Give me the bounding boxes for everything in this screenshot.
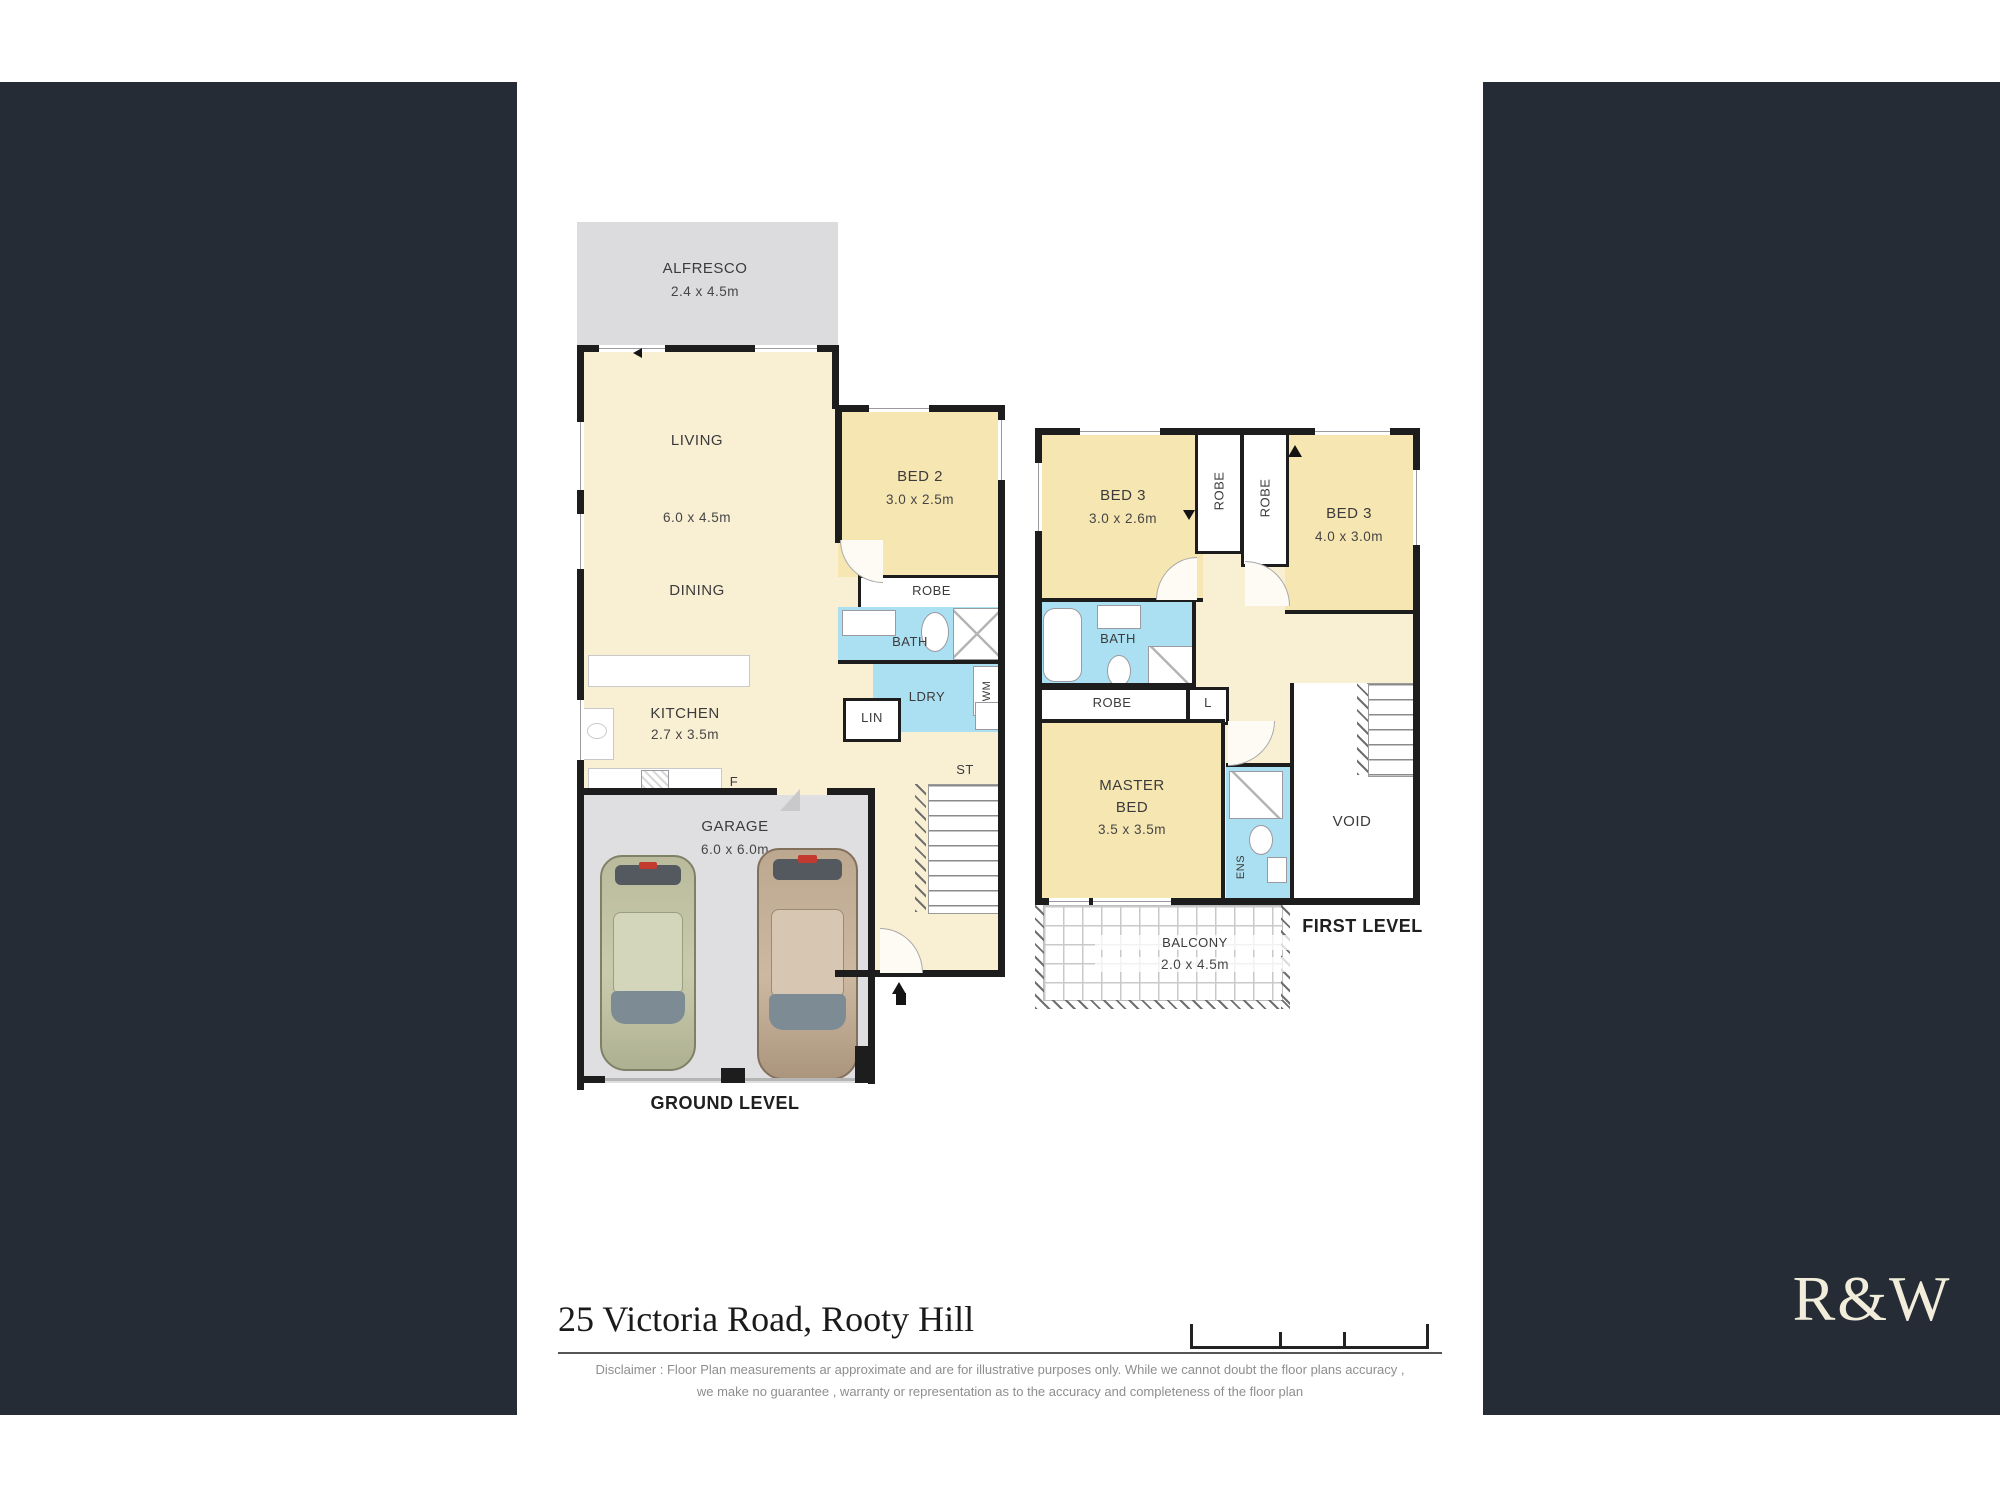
balcony-label: BALCONY	[1095, 935, 1295, 950]
master-label-2: BED	[1062, 799, 1202, 816]
wall	[832, 345, 839, 409]
window	[577, 700, 584, 760]
robe-closet-vertical: ROBE	[1195, 428, 1243, 554]
bed3-left-dims: 3.0 x 2.6m	[1053, 511, 1193, 526]
sink-bowl-icon	[587, 723, 607, 739]
window	[755, 345, 817, 352]
stair-hatch	[915, 784, 926, 912]
bed2-dims: 3.0 x 2.5m	[850, 492, 990, 507]
window	[1315, 428, 1390, 435]
lin-label: LIN	[846, 710, 898, 725]
bed3-right-dims: 4.0 x 3.0m	[1285, 529, 1413, 544]
shower-icon	[1148, 646, 1194, 687]
wall	[577, 788, 777, 795]
left-navy-panel	[0, 82, 517, 1415]
wall	[868, 788, 875, 1084]
staircase	[928, 784, 1000, 914]
window	[577, 514, 584, 569]
wall	[1192, 602, 1196, 687]
balcony-dims: 2.0 x 4.5m	[1095, 957, 1295, 972]
car-windshield-icon	[611, 991, 685, 1025]
master-dims: 3.5 x 3.5m	[1062, 822, 1202, 837]
shower-icon	[1229, 771, 1283, 819]
garage-entry-door-icon	[780, 789, 800, 811]
bath-label: BATH	[1073, 631, 1163, 646]
first-level-title: FIRST LEVEL	[1280, 916, 1445, 937]
garage-label: GARAGE	[665, 818, 805, 835]
linen-label: L	[1190, 695, 1226, 710]
window	[599, 345, 665, 352]
bed3-left-label: BED 3	[1053, 487, 1193, 504]
living-dims: 6.0 x 4.5m	[627, 510, 767, 525]
door-swing-arrow-icon	[1183, 510, 1195, 520]
alfresco-label: ALFRESCO	[615, 260, 795, 277]
staircase	[1368, 683, 1415, 777]
entry-arrow-stem	[896, 993, 906, 1005]
balcony-slider-door	[1093, 898, 1171, 905]
toilet-icon	[1249, 825, 1273, 855]
wall	[721, 1068, 745, 1083]
window	[577, 422, 584, 490]
bed2-label: BED 2	[850, 468, 990, 485]
living-label: LIVING	[627, 432, 767, 449]
garage-door-line	[605, 1078, 721, 1081]
wall	[1221, 719, 1225, 898]
disclaimer-line-2: we make no guarantee , warranty or repre…	[500, 1384, 1500, 1399]
window	[869, 405, 929, 412]
wall	[577, 1076, 605, 1083]
kitchen-dims: 2.7 x 3.5m	[615, 727, 755, 742]
stair-hatch	[1357, 683, 1368, 775]
garage-door-line	[745, 1078, 855, 1081]
bed3-right-label: BED 3	[1285, 505, 1413, 522]
robe-label: ROBE	[1212, 472, 1227, 511]
property-address: 25 Victoria Road, Rooty Hill	[558, 1298, 974, 1340]
wm-label: WM	[981, 681, 993, 702]
balcony-rail-hatch	[1035, 1000, 1290, 1009]
car-roof-icon	[613, 912, 683, 995]
robe-closet-vertical: ROBE	[1241, 428, 1289, 567]
vanity-icon	[842, 610, 896, 636]
dining-label: DINING	[627, 582, 767, 599]
alfresco-dims: 2.4 x 4.5m	[615, 284, 795, 299]
window	[1049, 898, 1089, 905]
agency-logo: R&W	[1762, 1262, 1982, 1336]
robe-label: ROBE	[1258, 478, 1273, 517]
master-label-1: MASTER	[1062, 777, 1202, 794]
bath-label: BATH	[850, 634, 970, 649]
footer-rule	[558, 1352, 1442, 1354]
window	[1413, 470, 1420, 545]
floorplan-page: { "colors": { "panel_navy": "#252c36", "…	[0, 0, 2000, 1500]
car-roof-icon	[771, 909, 845, 998]
car-taillight-icon	[639, 862, 657, 869]
window	[998, 420, 1005, 480]
kitchen-label: KITCHEN	[615, 705, 755, 722]
stairs-label: ST	[937, 762, 993, 777]
wall	[838, 660, 1002, 664]
window	[1035, 463, 1042, 531]
car-taillight-icon	[798, 855, 817, 863]
right-navy-panel	[1483, 82, 2000, 1415]
car-icon	[600, 855, 696, 1071]
robe-label: ROBE	[861, 583, 1002, 598]
balcony-rail-hatch	[1035, 905, 1044, 1009]
wall	[998, 405, 1005, 977]
scale-tick	[1343, 1332, 1346, 1346]
wall	[835, 405, 842, 543]
scale-bar	[1190, 1324, 1429, 1349]
linen-closet: LIN	[843, 698, 901, 742]
window	[1080, 428, 1160, 435]
wall	[1035, 719, 1225, 723]
door-swing-arrow-icon	[1288, 445, 1302, 457]
bed3-right-room	[1285, 435, 1413, 610]
robe-label: ROBE	[1038, 695, 1186, 710]
wall	[1290, 683, 1294, 898]
balcony-floor	[1043, 905, 1283, 1001]
wall	[1035, 683, 1195, 687]
ens-label: ENS	[1235, 855, 1247, 879]
ground-level-title: GROUND LEVEL	[640, 1093, 810, 1114]
wall	[855, 1046, 869, 1083]
disclaimer-line-1: Disclaimer : Floor Plan measurements ar …	[500, 1362, 1500, 1377]
fridge-label: F	[719, 774, 749, 789]
scale-tick	[1279, 1332, 1282, 1346]
wall	[1285, 610, 1413, 614]
basin-icon	[1267, 857, 1287, 883]
vanity-icon	[1097, 605, 1141, 629]
kitchen-bench	[588, 655, 750, 687]
ens-label-box: ENS	[1231, 845, 1251, 889]
car-windshield-icon	[769, 994, 847, 1030]
void-label: VOID	[1302, 813, 1402, 830]
car-icon	[757, 848, 858, 1080]
slider-door-arrow-icon	[633, 348, 642, 358]
sink-icon	[580, 708, 614, 760]
ground-floor-plan: ALFRESCO 2.4 x 4.5m BED 2 3.0 x 2.5m ROB…	[577, 222, 1007, 1122]
